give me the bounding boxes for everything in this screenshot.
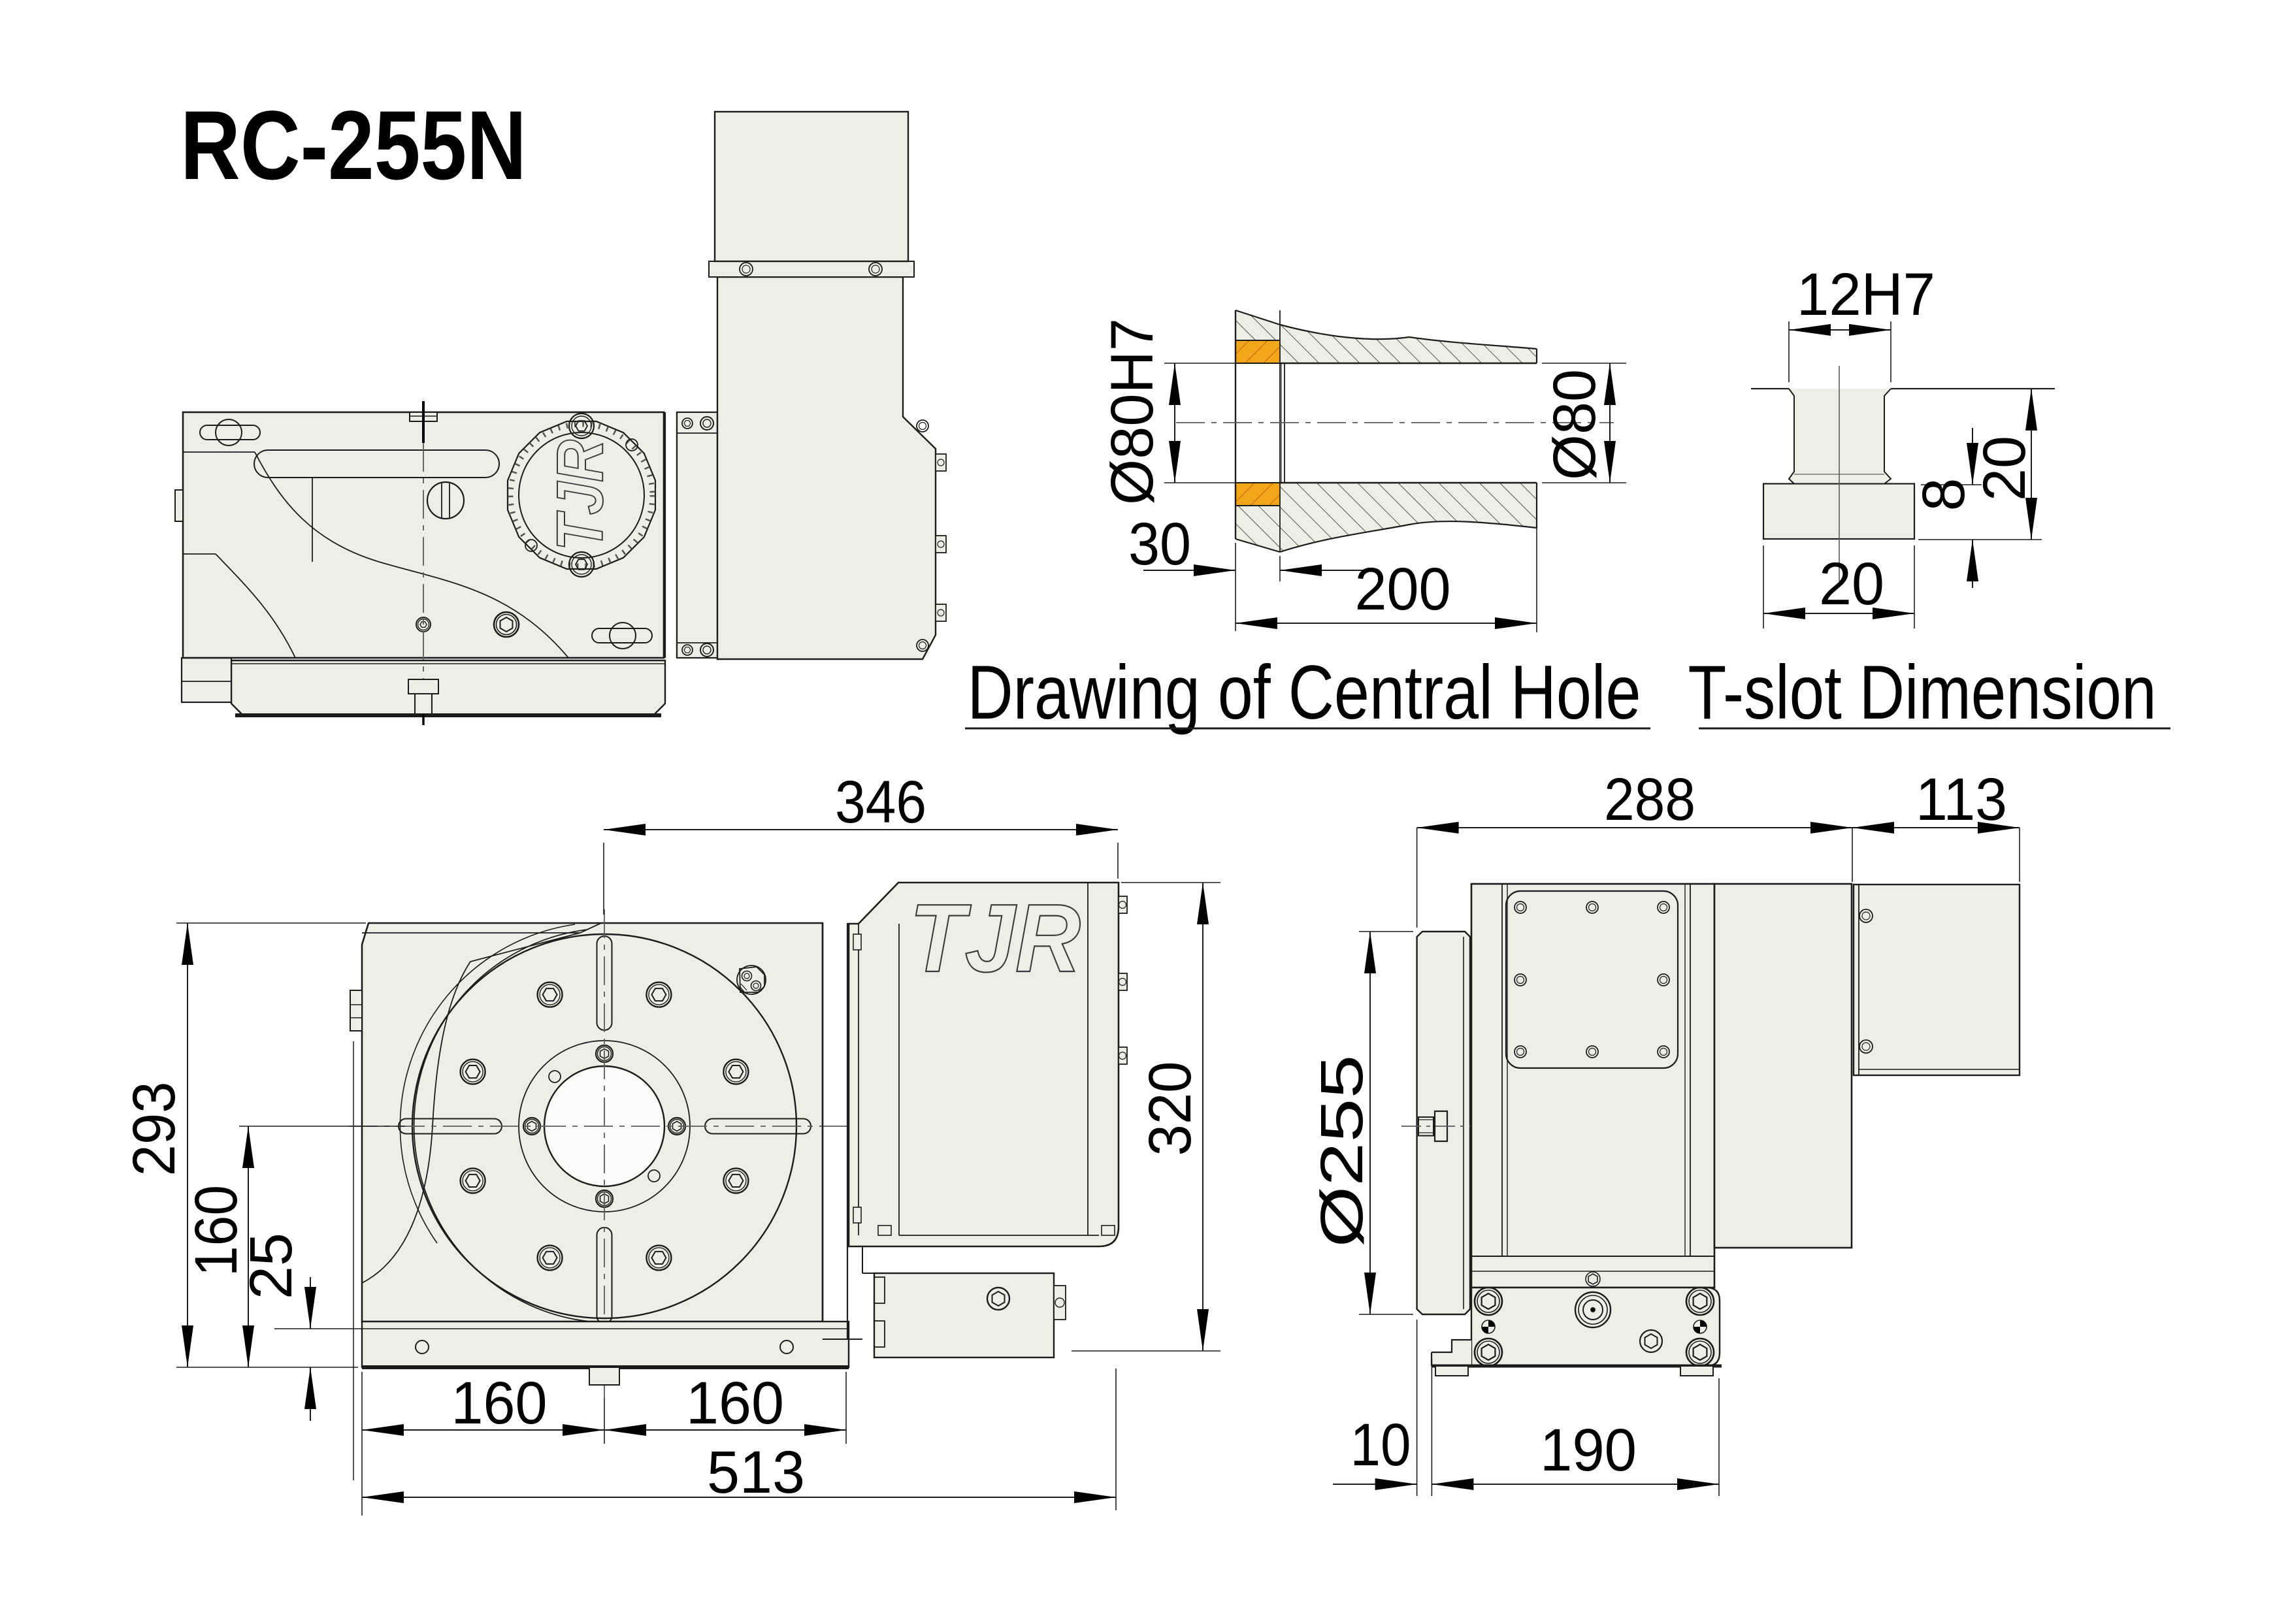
svg-text:288: 288 — [1604, 766, 1695, 833]
svg-text:Ø255: Ø255 — [1309, 1055, 1375, 1248]
svg-text:25: 25 — [238, 1233, 304, 1299]
svg-text:190: 190 — [1540, 1417, 1637, 1484]
svg-text:320: 320 — [1137, 1062, 1203, 1156]
svg-text:10: 10 — [1351, 1412, 1411, 1478]
svg-text:20: 20 — [1819, 551, 1884, 617]
svg-text:Ø80: Ø80 — [1541, 369, 1608, 480]
svg-text:Ø80H7: Ø80H7 — [1099, 318, 1166, 505]
svg-text:160: 160 — [686, 1370, 784, 1437]
svg-text:200: 200 — [1355, 556, 1451, 623]
svg-text:513: 513 — [707, 1439, 805, 1506]
svg-text:113: 113 — [1916, 766, 2007, 833]
svg-text:TJR: TJR — [544, 440, 617, 551]
svg-text:20: 20 — [1971, 436, 2038, 501]
svg-text:12H7: 12H7 — [1797, 261, 1935, 328]
svg-text:160: 160 — [451, 1370, 548, 1437]
svg-text:30: 30 — [1128, 511, 1191, 577]
svg-text:8: 8 — [1910, 478, 1977, 512]
svg-text:Drawing of Central Hole: Drawing of Central Hole — [968, 649, 1641, 735]
svg-text:RC-255N: RC-255N — [180, 90, 527, 200]
svg-text:TJR: TJR — [909, 885, 1081, 992]
svg-text:T-slot Dimension: T-slot Dimension — [1688, 649, 2157, 735]
svg-text:293: 293 — [121, 1082, 188, 1177]
svg-text:346: 346 — [835, 769, 926, 836]
